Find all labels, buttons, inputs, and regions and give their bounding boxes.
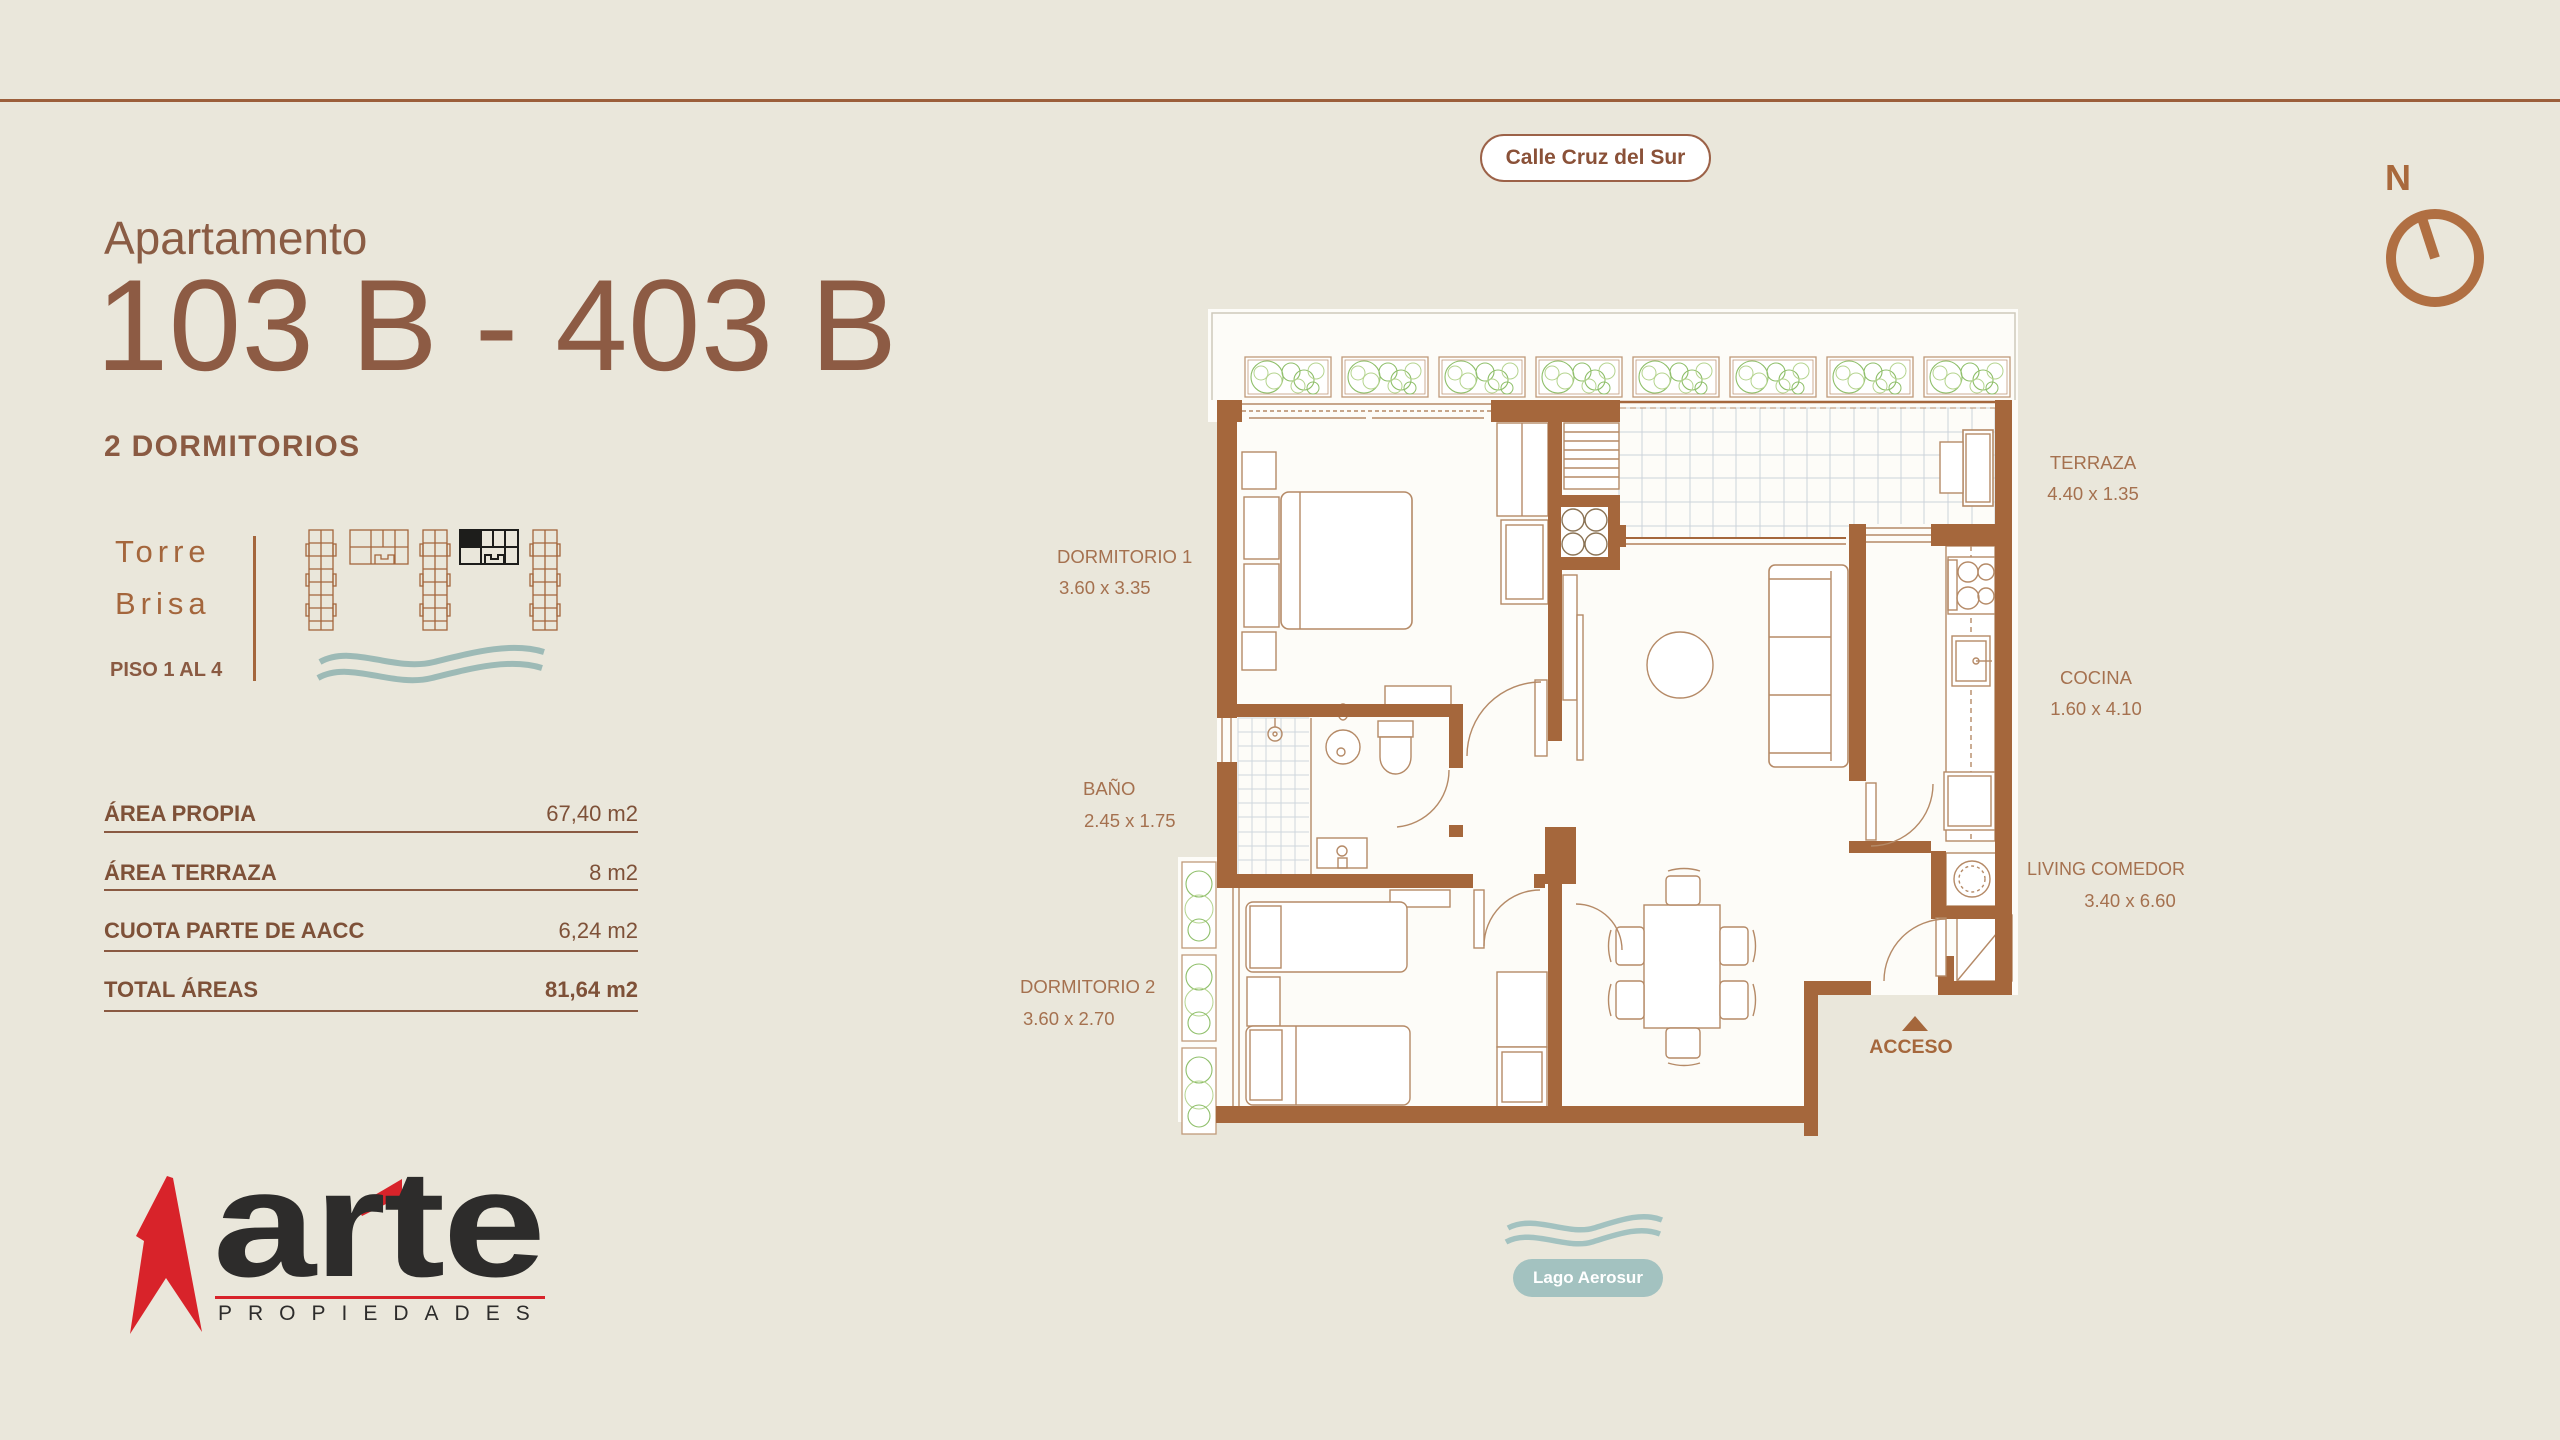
svg-text:2.45 x 1.75: 2.45 x 1.75	[1084, 810, 1176, 831]
svg-text:TERRAZA: TERRAZA	[2050, 452, 2137, 473]
svg-text:LIVING COMEDOR: LIVING COMEDOR	[2027, 859, 2185, 879]
svg-text:4.40 x 1.35: 4.40 x 1.35	[2047, 483, 2139, 504]
svg-text:3.60 x 2.70: 3.60 x 2.70	[1023, 1008, 1115, 1029]
svg-text:BAÑO: BAÑO	[1083, 778, 1135, 799]
svg-text:ACCESO: ACCESO	[1869, 1036, 1952, 1058]
svg-text:DORMITORIO 1: DORMITORIO 1	[1057, 546, 1192, 567]
svg-text:N: N	[2385, 157, 2411, 198]
svg-text:3.40 x 6.60: 3.40 x 6.60	[2084, 890, 2176, 911]
svg-text:DORMITORIO 2: DORMITORIO 2	[1020, 976, 1155, 997]
svg-text:COCINA: COCINA	[2060, 667, 2133, 688]
svg-text:3.60 x 3.35: 3.60 x 3.35	[1059, 577, 1151, 598]
svg-text:1.60 x 4.10: 1.60 x 4.10	[2050, 698, 2142, 719]
